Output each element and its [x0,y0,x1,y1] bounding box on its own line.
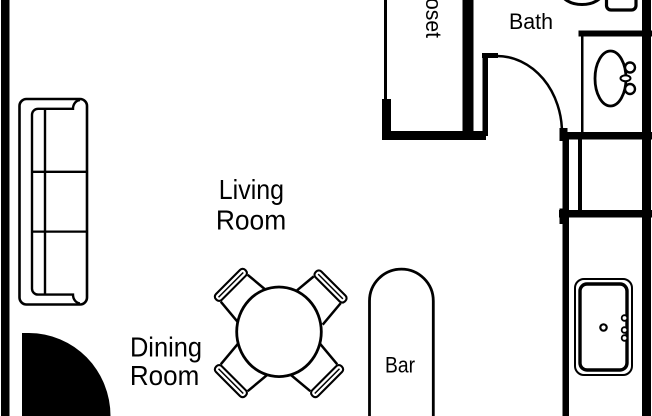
svg-text:Living: Living [219,174,284,205]
svg-text:Room: Room [216,205,286,236]
svg-text:Bar: Bar [385,353,415,378]
svg-text:Dining: Dining [130,332,202,363]
svg-text:Bath: Bath [509,9,553,34]
svg-text:Room: Room [130,360,199,391]
svg-text:Closet: Closet [421,0,446,39]
